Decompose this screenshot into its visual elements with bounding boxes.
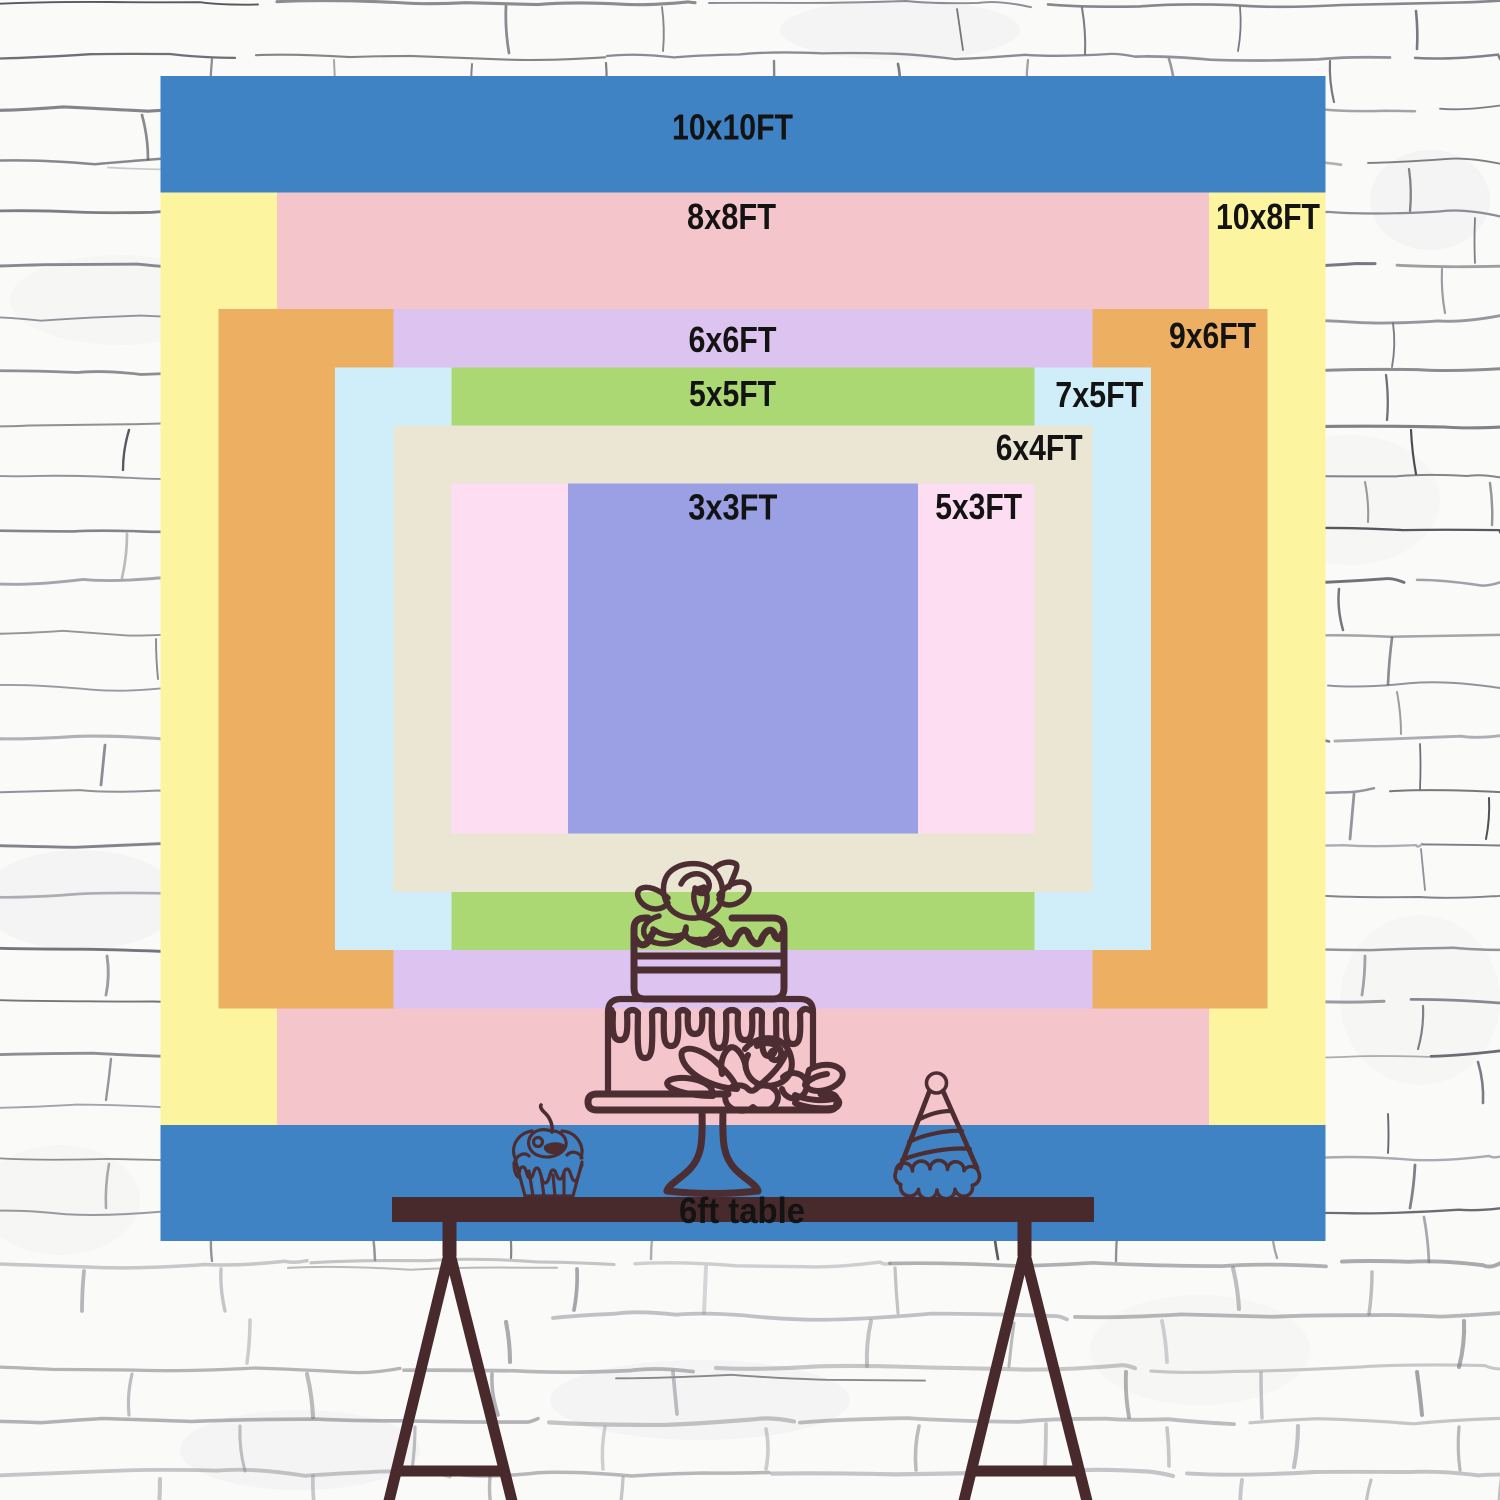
svg-text:6x6FT: 6x6FT: [689, 319, 777, 360]
svg-text:6ft table: 6ft table: [679, 1190, 805, 1231]
svg-text:5x5FT: 5x5FT: [689, 373, 776, 414]
svg-text:10x10FT: 10x10FT: [672, 107, 793, 148]
svg-text:6x4FT: 6x4FT: [996, 427, 1083, 468]
svg-text:7x5FT: 7x5FT: [1055, 374, 1143, 415]
svg-text:3x3FT: 3x3FT: [688, 487, 777, 528]
svg-text:8x8FT: 8x8FT: [687, 196, 776, 237]
svg-text:10x8FT: 10x8FT: [1216, 196, 1320, 237]
svg-text:5x3FT: 5x3FT: [935, 486, 1022, 527]
svg-text:9x6FT: 9x6FT: [1169, 315, 1256, 356]
